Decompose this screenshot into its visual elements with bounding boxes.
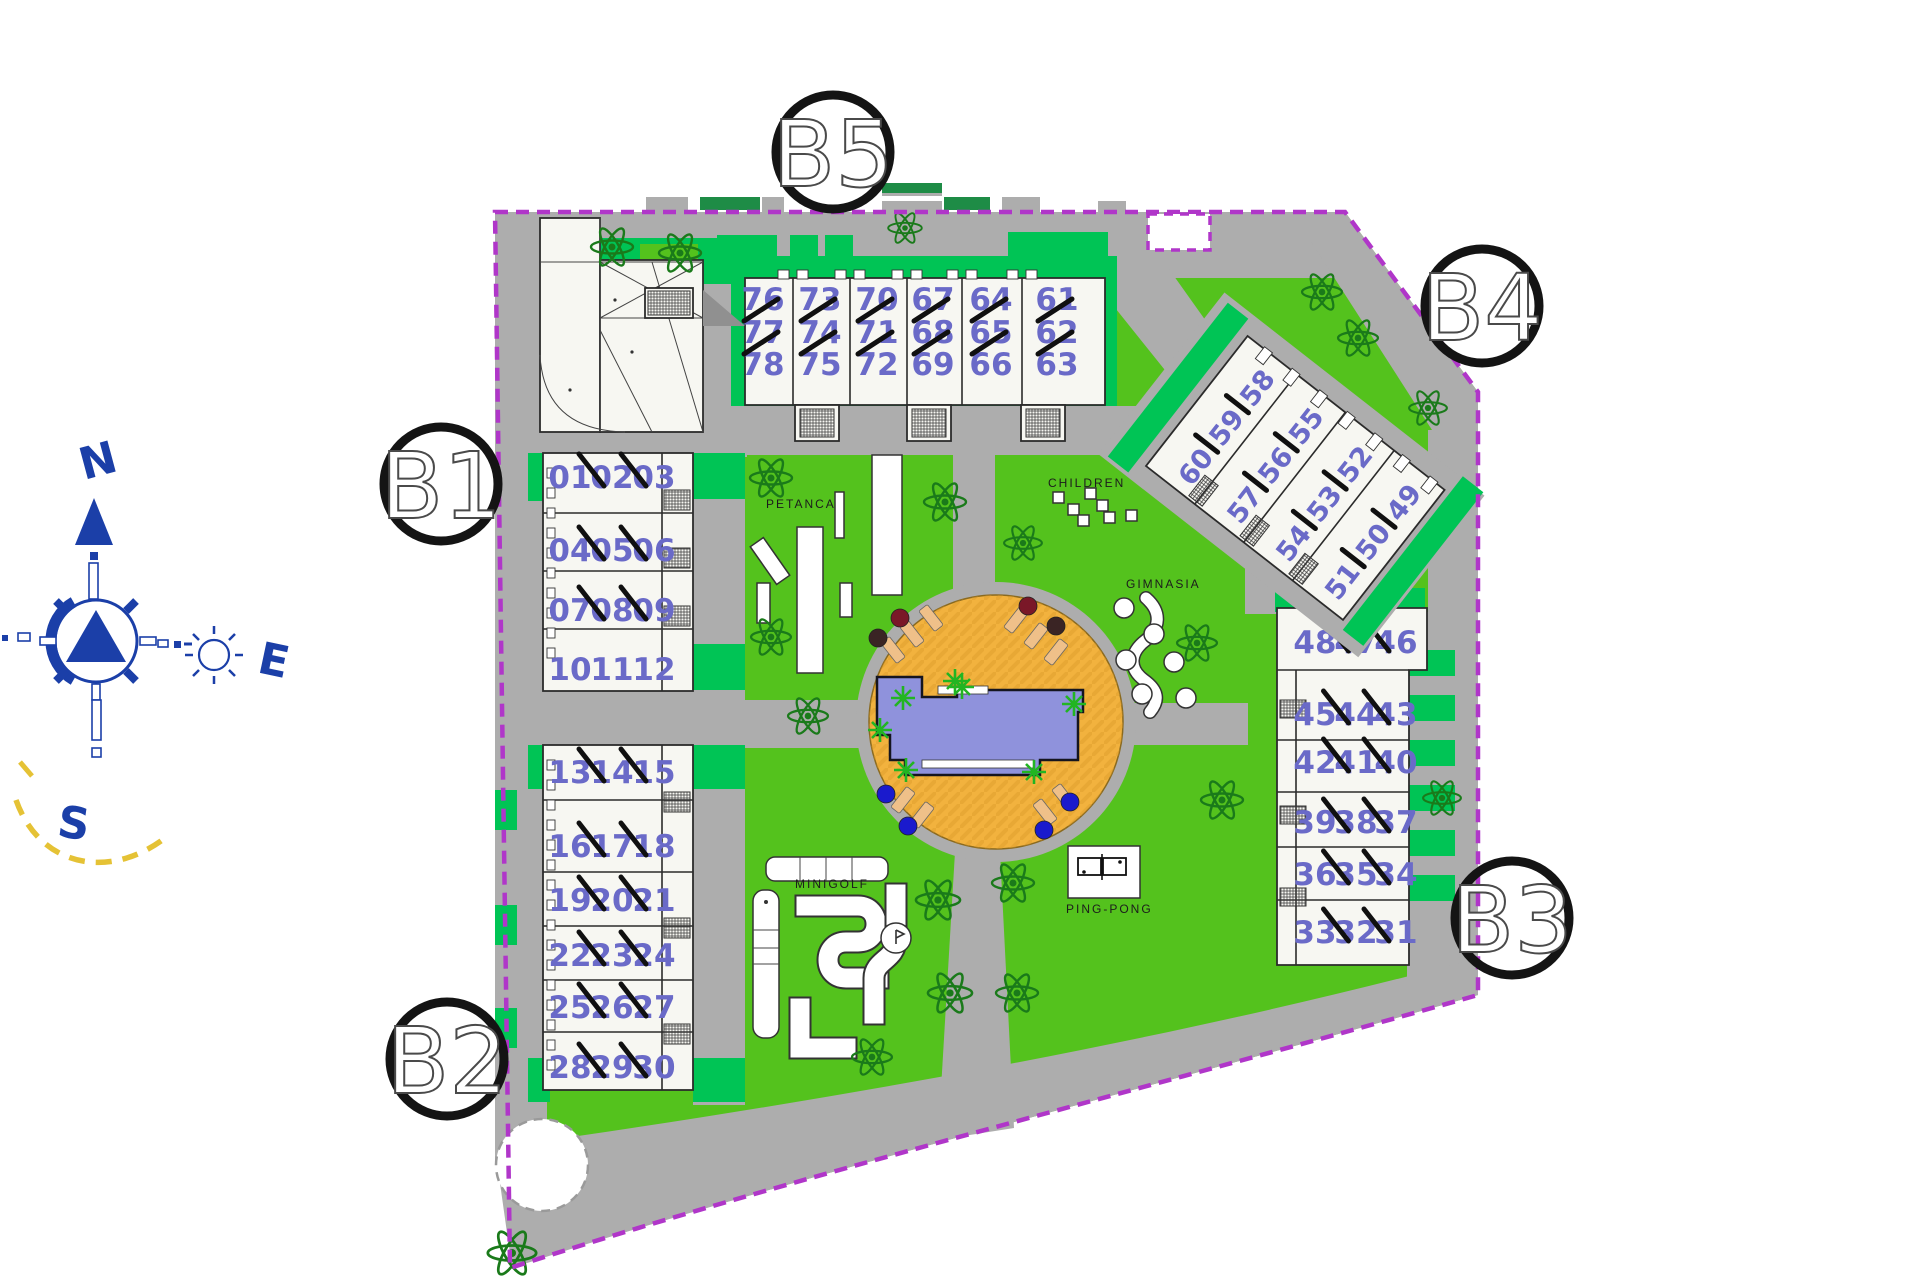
play-equipment bbox=[1078, 515, 1089, 526]
parasol-icon bbox=[1061, 793, 1079, 811]
balcony bbox=[547, 920, 555, 930]
gimnasia-label: GIMNASIA bbox=[1126, 577, 1201, 591]
balcony bbox=[547, 800, 555, 810]
balcony bbox=[1026, 270, 1037, 279]
marker-b5-label: B5 bbox=[772, 101, 894, 208]
balcony bbox=[854, 270, 865, 279]
balcony bbox=[911, 270, 922, 279]
site-plan-drawing: PETANCA CHILDREN GIMNASIA MINIGOLF PING-… bbox=[0, 0, 1920, 1280]
compass-rose: N E S bbox=[2, 432, 294, 863]
balcony bbox=[547, 980, 555, 990]
children-label: CHILDREN bbox=[1048, 476, 1125, 490]
parasol-icon bbox=[1035, 821, 1053, 839]
play-equipment bbox=[1097, 500, 1108, 511]
marker-b2: B2 bbox=[386, 1002, 508, 1116]
marker-b2-label: B2 bbox=[386, 1008, 508, 1115]
marker-b4: B4 bbox=[1421, 249, 1543, 363]
parasol-icon bbox=[899, 817, 917, 835]
marker-b4-label: B4 bbox=[1421, 255, 1543, 362]
balcony bbox=[547, 508, 555, 518]
balcony bbox=[778, 270, 789, 279]
play-equipment bbox=[1068, 504, 1079, 515]
building-b5: 767778737475707172676869646566616263 bbox=[741, 270, 1105, 441]
unit-number: 12 bbox=[632, 652, 675, 688]
play-equipment bbox=[1104, 512, 1115, 523]
parasol-icon bbox=[1047, 617, 1065, 635]
unit-number: 11 bbox=[590, 652, 633, 688]
parasol-icon bbox=[877, 785, 895, 803]
play-equipment bbox=[1126, 510, 1137, 521]
marker-b3-label: B3 bbox=[1451, 867, 1573, 974]
parasol-icon bbox=[869, 629, 887, 647]
pool-plaza bbox=[856, 582, 1136, 862]
unit-number: 10 bbox=[548, 652, 591, 688]
marker-b3: B3 bbox=[1451, 861, 1573, 975]
balcony bbox=[835, 270, 846, 279]
marker-b5: B5 bbox=[772, 95, 894, 209]
compass-north-label: N bbox=[74, 432, 123, 491]
marker-b1: B1 bbox=[380, 427, 502, 541]
compass-south-label: S bbox=[54, 796, 92, 851]
parasol-icon bbox=[1019, 597, 1037, 615]
balcony bbox=[966, 270, 977, 279]
parasol-icon bbox=[891, 609, 909, 627]
balcony bbox=[1007, 270, 1018, 279]
balcony bbox=[547, 568, 555, 578]
marker-b1-label: B1 bbox=[380, 433, 502, 540]
petanca-label: PETANCA bbox=[766, 497, 836, 511]
balcony bbox=[947, 270, 958, 279]
play-equipment bbox=[1053, 492, 1064, 503]
minigolf-label: MINIGOLF bbox=[795, 877, 869, 891]
building-b2: 131415161718192021222324252627282930 bbox=[543, 745, 693, 1090]
reserved-plot-dashed bbox=[1148, 214, 1210, 250]
balcony bbox=[547, 1040, 555, 1050]
balcony bbox=[797, 270, 808, 279]
balcony bbox=[892, 270, 903, 279]
balcony bbox=[547, 628, 555, 638]
ping-pong-area bbox=[1068, 846, 1140, 898]
site-plan-page: PETANCA CHILDREN GIMNASIA MINIGOLF PING-… bbox=[0, 0, 1920, 1280]
compass-east-label: E bbox=[254, 633, 294, 689]
ping-pong-label: PING-PONG bbox=[1066, 902, 1153, 916]
building-b3: 484746454443424140393837363534333231 bbox=[1277, 608, 1427, 965]
building-b1: 010203040506070809101112 bbox=[543, 453, 693, 691]
